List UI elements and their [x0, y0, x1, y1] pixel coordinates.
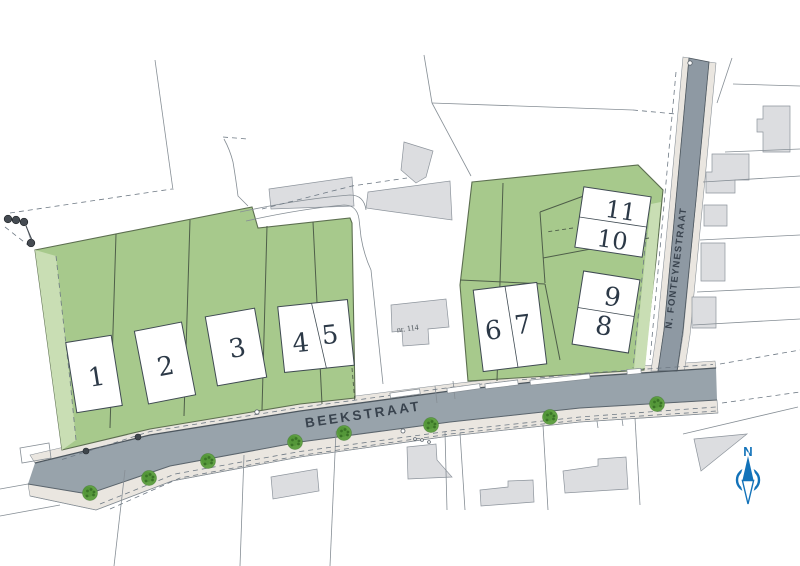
- tree: [83, 486, 98, 501]
- pole-link-line: [26, 226, 32, 240]
- lot-number: 5: [320, 320, 340, 352]
- boundary-line: [432, 103, 471, 176]
- boundary-line: [155, 60, 173, 190]
- building-footprint: [706, 154, 749, 193]
- tree: [337, 426, 352, 441]
- tree: [424, 418, 439, 433]
- manhole-dot: [83, 448, 89, 454]
- tree: [543, 410, 558, 425]
- utility-circle: [688, 61, 692, 65]
- building-footprint: [401, 142, 433, 183]
- lot-10-11: 1110: [575, 187, 651, 259]
- pole-marker: [12, 216, 20, 224]
- driveway-mark: [597, 421, 598, 428]
- building-nr114-footprint: [391, 299, 449, 346]
- boundary-line: [717, 58, 732, 103]
- pole-marker: [27, 239, 35, 247]
- building-footprint: [366, 181, 452, 220]
- boundary-line: [635, 418, 640, 505]
- pole-marker: [4, 215, 12, 223]
- tree: [288, 435, 303, 450]
- boundary-line-dashed: [633, 110, 676, 114]
- boundary-line: [543, 425, 548, 510]
- building-footprint: [271, 469, 319, 499]
- boundary-line: [733, 84, 800, 86]
- building-footprint: [480, 480, 534, 506]
- boundary-line: [224, 139, 248, 206]
- lot-number: 11: [604, 195, 638, 227]
- boundary-line-dashed: [722, 392, 800, 403]
- utility-circle: [428, 441, 431, 444]
- lot-4-5: 45: [278, 300, 355, 373]
- building-footprint: [701, 243, 725, 281]
- driveway-mark: [622, 419, 623, 426]
- boundary-line-dashed: [10, 189, 172, 213]
- lot-6-7: 67: [473, 282, 547, 371]
- tree: [142, 471, 157, 486]
- building-footprint: [694, 434, 747, 471]
- building-footprint: [704, 205, 727, 226]
- boundary-line: [424, 55, 432, 103]
- building-footprint: [692, 297, 716, 328]
- site-plan: 1234567981110 BEEKSTRAAT N. FONTEYNESTRA…: [0, 0, 800, 566]
- building-footprint: [757, 106, 790, 152]
- boundary-line: [697, 287, 800, 292]
- lot-box: [278, 300, 355, 373]
- tree: [650, 397, 665, 412]
- tree: [201, 454, 216, 469]
- boundary-line: [240, 455, 244, 566]
- utility-circle: [255, 410, 259, 414]
- building-footprint: [563, 457, 628, 493]
- lot-8-9: 98: [572, 271, 640, 353]
- boundary-line: [700, 235, 800, 240]
- site-plan-drawing: 1234567981110 BEEKSTRAAT N. FONTEYNESTRA…: [0, 0, 800, 566]
- boundary-line-dashed: [720, 350, 800, 364]
- driveway-mark: [627, 368, 641, 374]
- boundary-line: [432, 103, 633, 110]
- manhole-dot: [135, 434, 141, 440]
- utility-circle: [414, 438, 417, 441]
- north-compass: N: [737, 444, 759, 509]
- lot-number: 4: [291, 328, 311, 360]
- pole-marker: [20, 218, 28, 226]
- boundary-line: [0, 505, 60, 516]
- boundary-line: [460, 433, 465, 510]
- lot-number: 10: [595, 224, 629, 256]
- utility-circle: [401, 429, 405, 433]
- boundary-line-dashed: [223, 137, 247, 139]
- boundary-line: [0, 484, 28, 489]
- utility-circle: [421, 439, 424, 442]
